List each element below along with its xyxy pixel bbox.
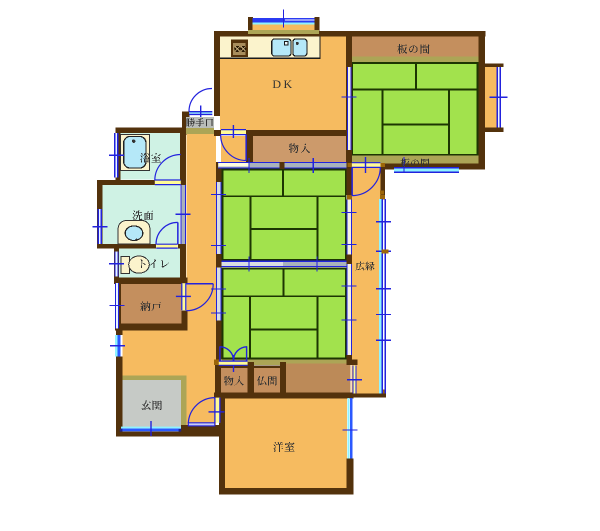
svg-text:DK: DK bbox=[272, 77, 294, 91]
